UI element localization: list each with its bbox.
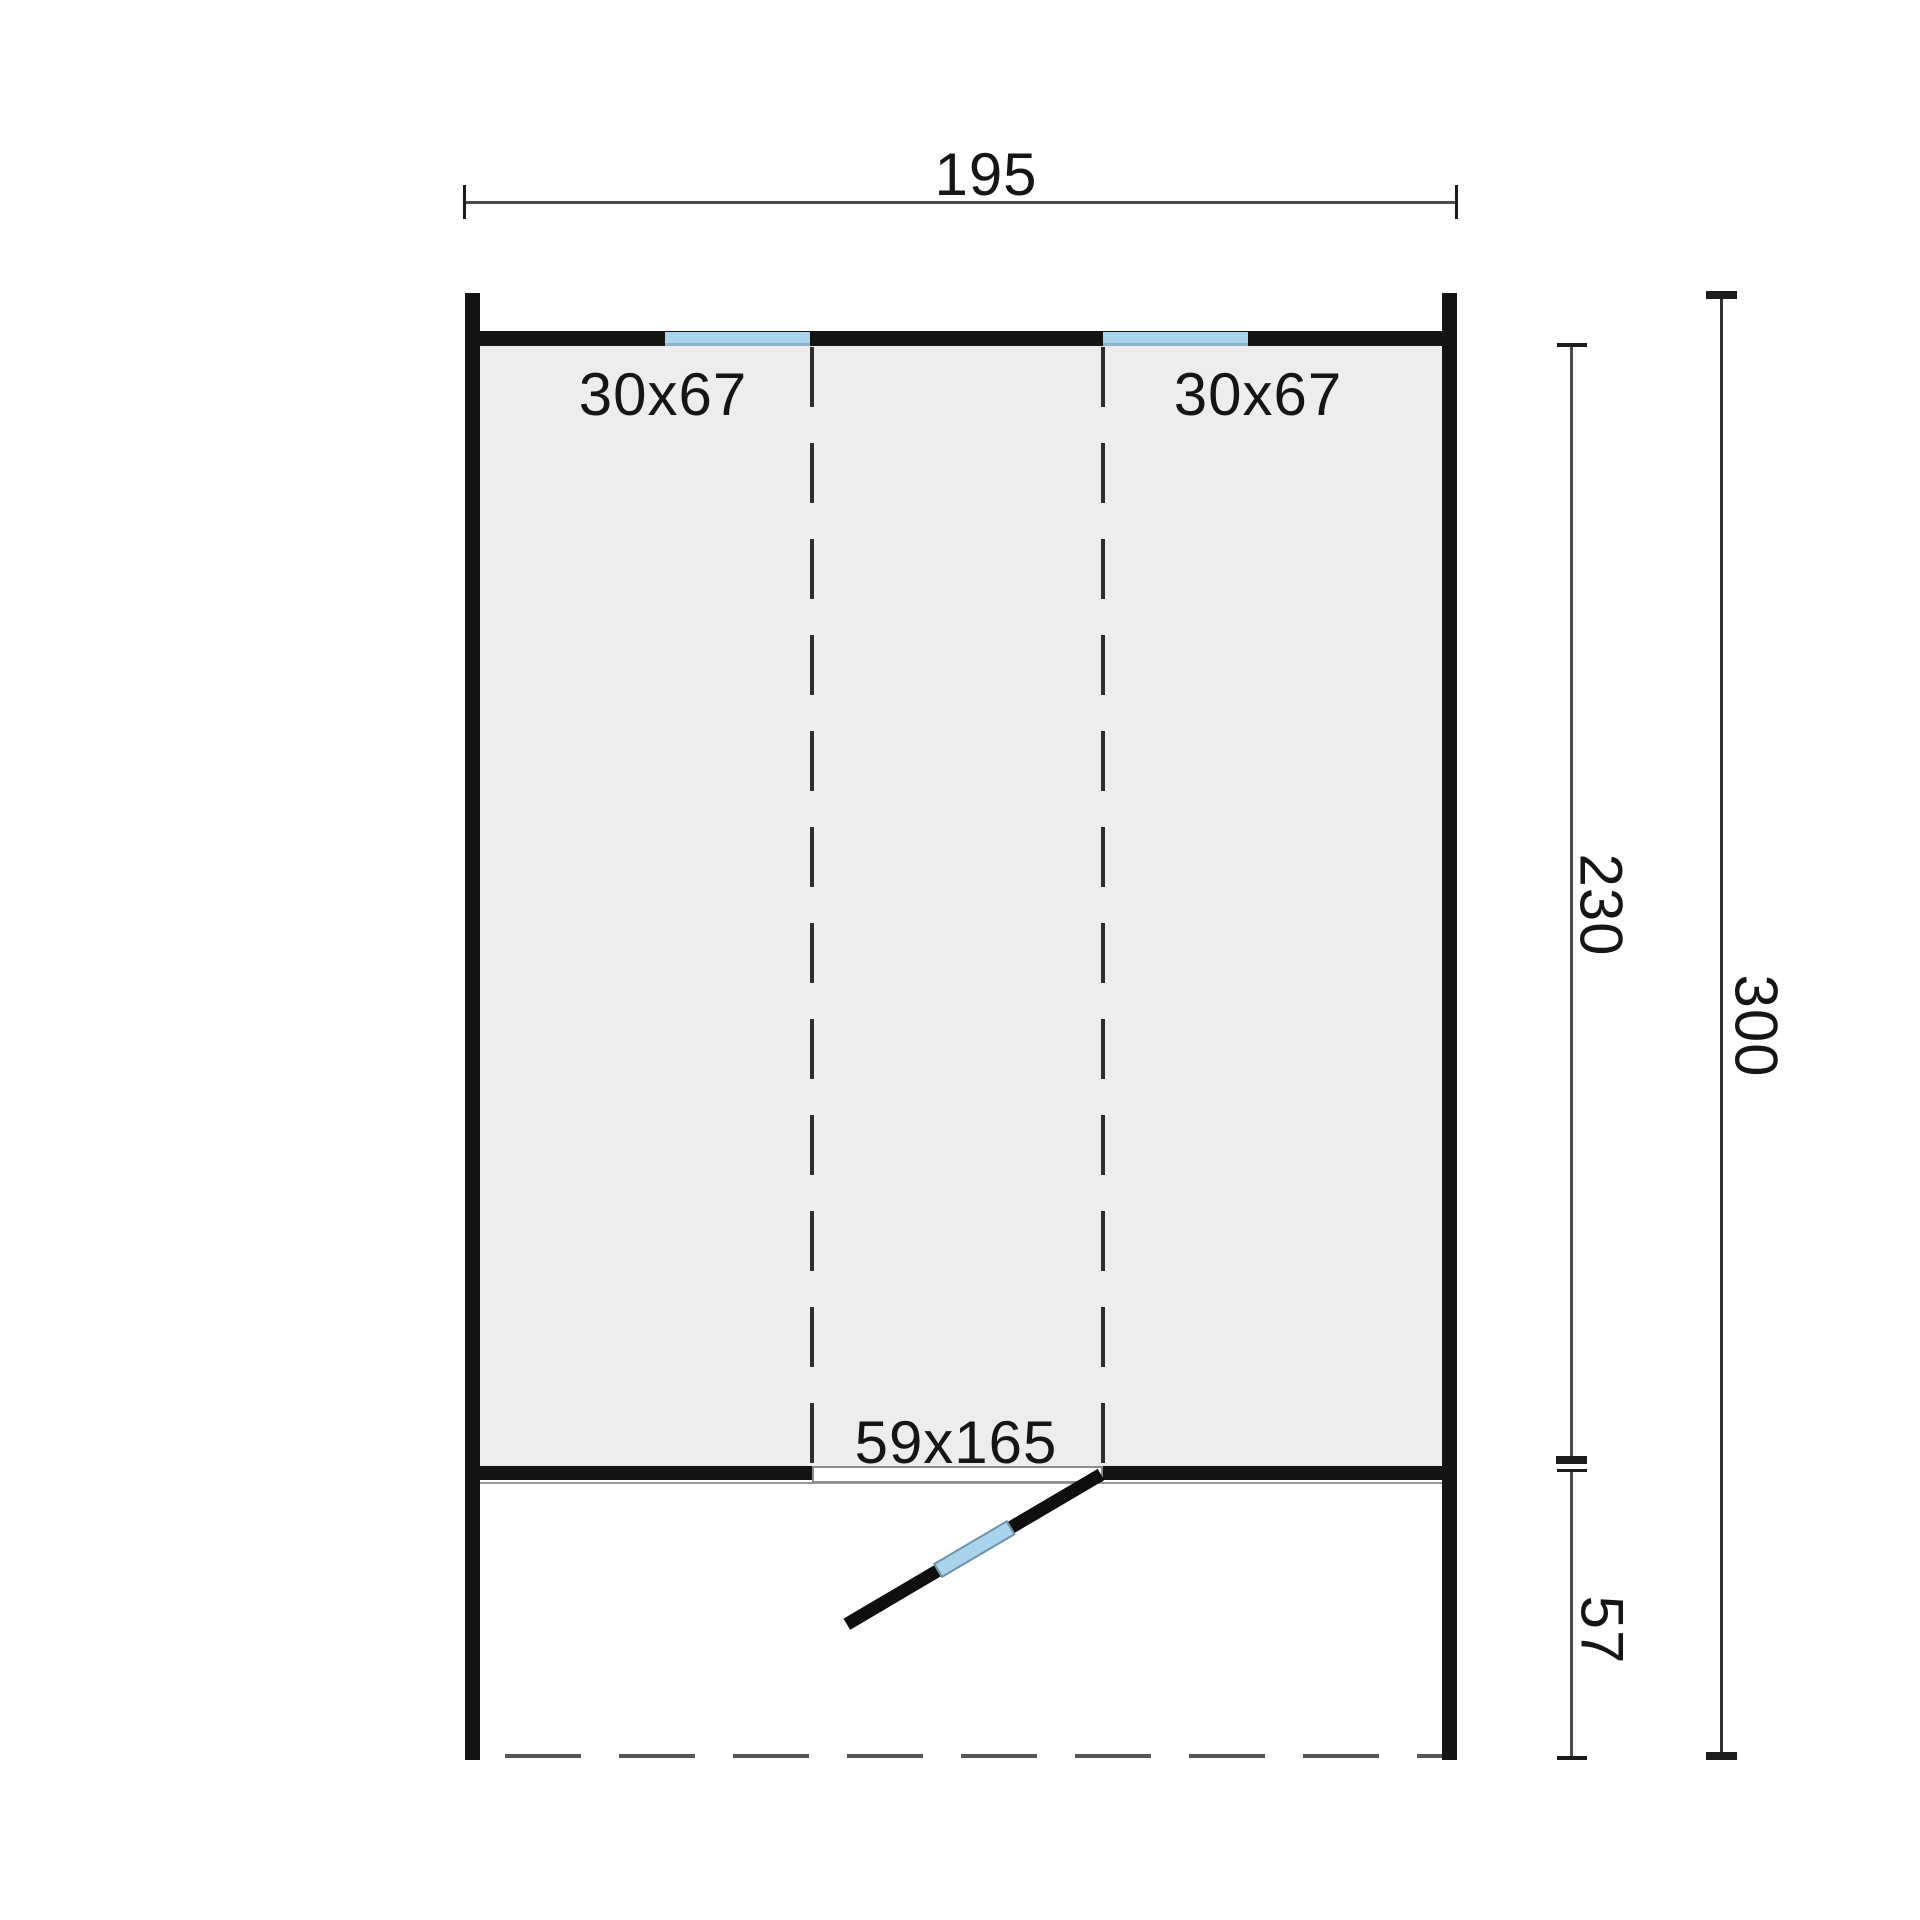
top-wall (465, 331, 1457, 346)
dim-total-depth-tick-top (1706, 291, 1737, 299)
bottom-wall-right-segment (1103, 1466, 1457, 1480)
dim-width-label: 195 (934, 140, 1037, 209)
door-label: 59x165 (855, 1408, 1058, 1477)
door-leaf (844, 1469, 1105, 1630)
window-right (1103, 332, 1248, 346)
window-right-label: 30x67 (1174, 360, 1342, 429)
door-glazing (933, 1520, 1016, 1578)
bottom-wall-left-segment (465, 1466, 812, 1480)
dim-width-tick-right (1455, 185, 1458, 219)
dim-porch-depth-label: 57 (1568, 1596, 1637, 1665)
window-left (665, 332, 810, 346)
dim-inner-depth-tick-top (1557, 343, 1587, 347)
bay-dashed-line-right (1101, 347, 1105, 1466)
dim-width-tick-left (463, 185, 466, 219)
dim-inner-depth-label: 230 (1567, 853, 1636, 956)
bay-dashed-line-left (810, 347, 814, 1466)
right-wall (1442, 293, 1457, 1760)
dim-porch-depth-tick-bottom (1557, 1756, 1587, 1760)
porch-front-dashed-line (505, 1754, 1442, 1758)
dim-inner-depth-tick-bottom (1556, 1456, 1587, 1464)
window-left-label: 30x67 (579, 360, 747, 429)
dim-porch-depth-tick-top (1557, 1469, 1587, 1472)
floor-plan-sheet: 195 230 57 300 30x67 30x67 59x165 (0, 0, 1920, 1920)
dim-total-depth-tick-bottom (1706, 1752, 1737, 1760)
dim-total-depth-label: 300 (1722, 974, 1791, 1077)
interior-floor (480, 346, 1442, 1466)
left-wall (465, 293, 480, 1760)
